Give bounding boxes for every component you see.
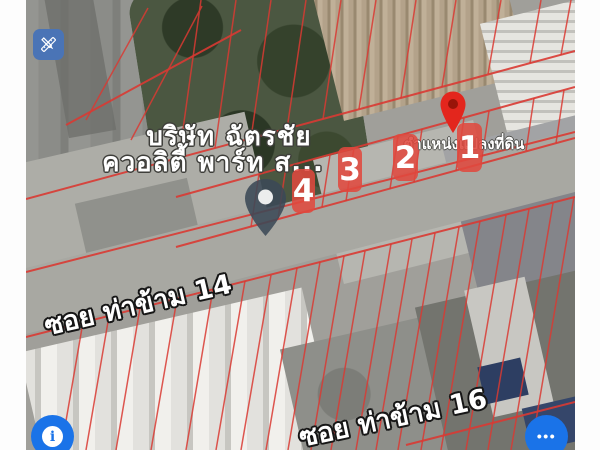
parcel-marker-3[interactable]: 3 — [338, 147, 362, 192]
parcel-marker-4[interactable]: 4 — [292, 169, 315, 213]
land-location-pin-icon[interactable] — [439, 90, 467, 135]
more-options-button[interactable]: ••• — [525, 415, 568, 450]
parcel-marker-4-label: 4 — [293, 173, 315, 209]
place-pin-icon[interactable] — [242, 177, 289, 238]
info-icon: i — [42, 426, 63, 447]
info-button[interactable]: i — [31, 415, 74, 450]
parcel-marker-2[interactable]: 2 — [393, 134, 418, 181]
satellite-map-viewport[interactable]: บริษัท ฉัตรชัย ควอลิตี้ พาร์ท ส... ซอย ท… — [26, 0, 575, 450]
parcel-marker-3-label: 3 — [339, 152, 361, 188]
map-app-screen: บริษัท ฉัตรชัย ควอลิตี้ พาร์ท ส... ซอย ท… — [0, 0, 600, 450]
ellipsis-icon: ••• — [537, 428, 556, 444]
pencil-ruler-icon — [39, 34, 58, 55]
edit-tools-button[interactable] — [33, 29, 64, 60]
parcel-marker-2-label: 2 — [395, 140, 417, 176]
